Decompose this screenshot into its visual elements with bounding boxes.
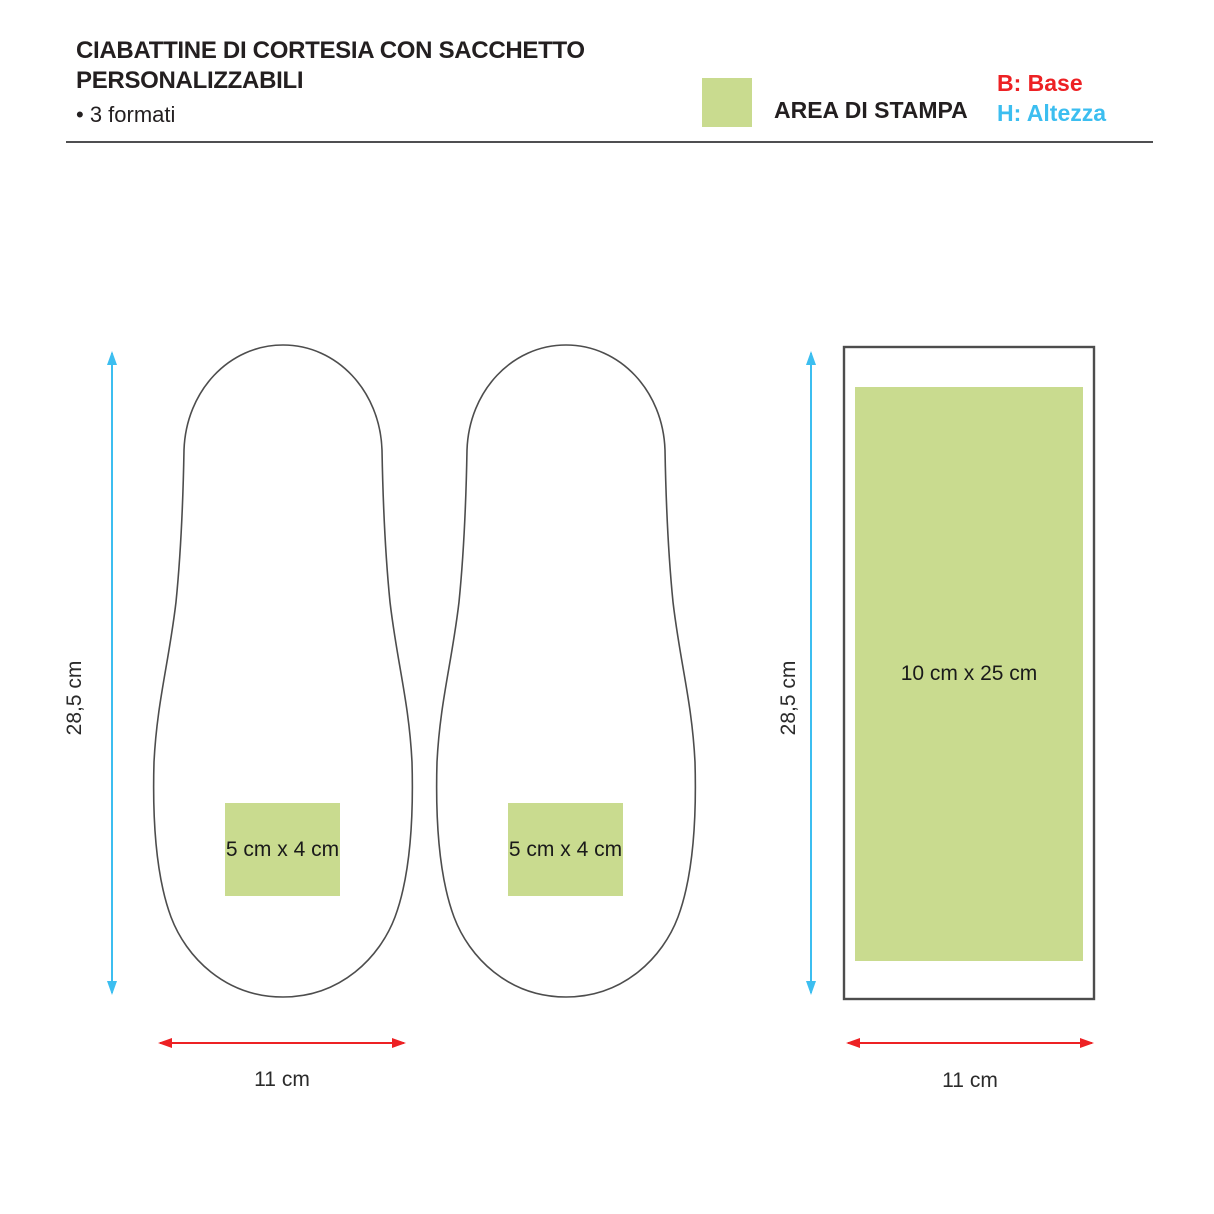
slipper-left-print-area: 5 cm x 4 cm [225, 803, 340, 896]
bag-width-label: 11 cm [942, 1069, 998, 1093]
slippers-height-label: 28,5 cm [63, 661, 87, 736]
slipper-left-outline [154, 345, 413, 997]
bag-print-area: 10 cm x 25 cm [855, 387, 1083, 961]
slipper-center-print-area: 5 cm x 4 cm [508, 803, 623, 896]
bag-print-area-label: 10 cm x 25 cm [901, 662, 1038, 686]
slipper-center-outline [437, 345, 696, 997]
spec-sheet-page: CIABATTINE DI CORTESIA CON SACCHETTO PER… [0, 0, 1214, 1214]
bag-height-label: 28,5 cm [777, 661, 801, 736]
slipper-left-print-area-label: 5 cm x 4 cm [226, 838, 339, 862]
slipper-center-print-area-label: 5 cm x 4 cm [509, 838, 622, 862]
slippers-width-label: 11 cm [254, 1068, 310, 1092]
